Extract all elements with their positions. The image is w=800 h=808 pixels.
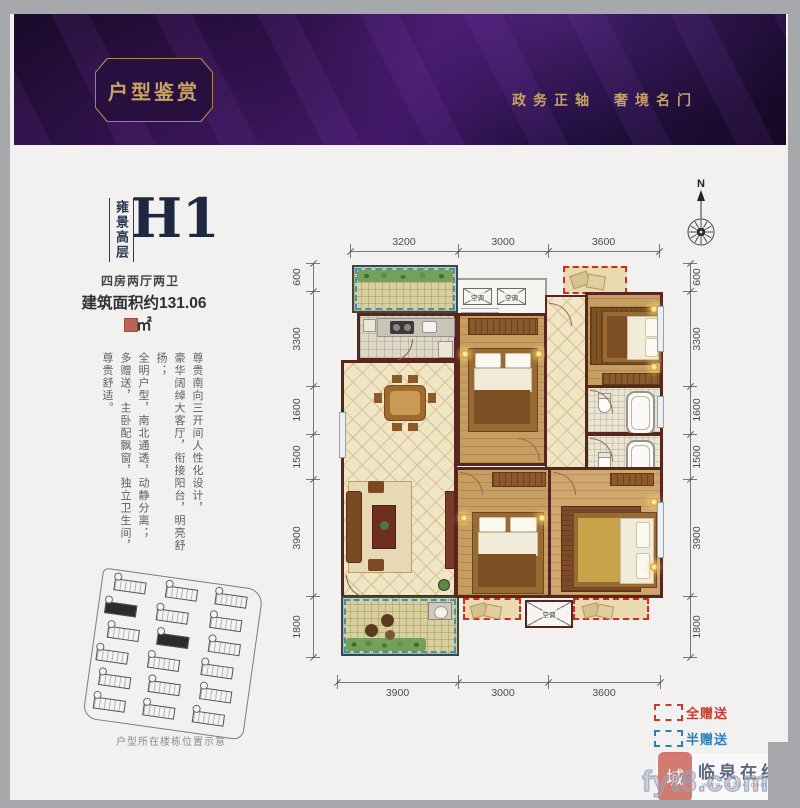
sofa bbox=[346, 491, 362, 563]
description-line: 豪华阔绰大客厅，衔接阳台，明亮舒扬； bbox=[152, 352, 188, 564]
legend-full-gift-label: 全赠送 bbox=[686, 703, 728, 722]
siteplan-building bbox=[156, 608, 189, 624]
dimension-label: 600 bbox=[691, 268, 703, 286]
bay-window-south-gift-1 bbox=[463, 598, 521, 620]
dimension-label: 3000 bbox=[491, 687, 514, 699]
page-title: 户型鉴赏 bbox=[108, 76, 200, 105]
siteplan-building bbox=[147, 680, 180, 696]
dimension-label: 3000 bbox=[491, 236, 514, 248]
bedroom-northeast bbox=[585, 292, 663, 390]
entry-door bbox=[346, 575, 369, 598]
entry-hall bbox=[545, 295, 589, 487]
siteplan-building bbox=[165, 585, 198, 601]
window bbox=[657, 502, 664, 558]
bedroom-north bbox=[457, 313, 547, 466]
siteplan-building bbox=[156, 633, 189, 649]
bathroom-1 bbox=[585, 385, 663, 435]
siteplan-building bbox=[142, 703, 175, 719]
compass: N bbox=[678, 178, 724, 248]
dimension-label: 1500 bbox=[291, 445, 303, 468]
laundry-basin bbox=[428, 602, 452, 620]
banner: 户型鉴赏 政务正轴奢境名门 bbox=[14, 14, 786, 145]
dimension-label: 1600 bbox=[691, 398, 703, 421]
description-line: 多赠送，主卧配飘窗，独立卫生间，尊贵舒适。 bbox=[98, 352, 134, 564]
bedroom-door bbox=[553, 472, 576, 495]
dimension-label: 600 bbox=[291, 268, 303, 286]
unit-code: H1 bbox=[131, 186, 220, 250]
dimension-label: 1500 bbox=[691, 445, 703, 468]
stove bbox=[390, 321, 414, 334]
bed bbox=[573, 512, 657, 588]
frame-right bbox=[788, 0, 800, 808]
siteplan-building bbox=[200, 663, 233, 679]
bay-window-north-gift bbox=[563, 266, 627, 294]
siteplan-building bbox=[192, 710, 225, 726]
siteplan-building bbox=[104, 601, 137, 617]
red-seal-stamp bbox=[124, 318, 138, 332]
master-bedroom bbox=[548, 467, 663, 598]
dimension-label: 3300 bbox=[691, 327, 703, 350]
dimension-label: 3200 bbox=[392, 236, 415, 248]
siteplan-caption: 户型所在楼栋位置示意 bbox=[96, 733, 246, 748]
frame-left bbox=[0, 0, 10, 808]
coffee-table bbox=[372, 505, 396, 549]
siteplan-building bbox=[113, 578, 146, 594]
description-line: 全明户型，南北通透，动静分离； bbox=[134, 352, 152, 564]
siteplan-building bbox=[209, 616, 242, 632]
dimension-label: 1600 bbox=[291, 398, 303, 421]
living-dining-room bbox=[341, 360, 457, 598]
kitchen-door bbox=[390, 339, 413, 362]
fridge bbox=[438, 341, 453, 358]
bed bbox=[468, 348, 538, 432]
dim-line-left bbox=[313, 263, 314, 657]
ac-platform-top-right: 空调 bbox=[497, 288, 526, 305]
slogan-left: 政务正轴 bbox=[512, 93, 596, 109]
ac-platform-bottom: 空调 bbox=[525, 600, 573, 628]
unit-area: 建筑面积约131.06㎡ bbox=[74, 291, 214, 335]
balcony-top bbox=[352, 265, 458, 313]
dimension-label: 1800 bbox=[291, 615, 303, 638]
bedroom-door bbox=[517, 438, 540, 461]
siteplan-building bbox=[214, 592, 247, 608]
legend-full-gift-box bbox=[654, 704, 683, 721]
tv-cabinet bbox=[445, 491, 455, 569]
floor-plan: 空调 空调 bbox=[337, 262, 663, 658]
legend-half-gift-box bbox=[654, 730, 683, 747]
legend-half-gift-label: 半赠送 bbox=[686, 729, 728, 748]
compass-rose-icon bbox=[678, 190, 724, 248]
kitchen-sink bbox=[422, 321, 437, 333]
siteplan-building bbox=[98, 673, 131, 689]
window bbox=[657, 306, 664, 352]
banner-slogan: 政务正轴奢境名门 bbox=[512, 90, 716, 110]
bed bbox=[472, 512, 544, 594]
dining-table bbox=[384, 385, 426, 421]
bathroom-door bbox=[590, 438, 613, 461]
unit-entry-door bbox=[549, 303, 572, 326]
siteplan-building bbox=[208, 640, 241, 656]
dimension-label: 3900 bbox=[291, 526, 303, 549]
title-frame: 户型鉴赏 bbox=[95, 58, 213, 122]
dimension-label: 3600 bbox=[592, 687, 615, 699]
siteplan-building bbox=[147, 656, 180, 672]
unit-layout: 四房两厅两卫 bbox=[90, 272, 190, 289]
dimension-label: 3300 bbox=[291, 327, 303, 350]
bed bbox=[602, 311, 662, 363]
kitchen bbox=[357, 313, 457, 361]
window bbox=[339, 412, 346, 458]
slogan-right: 奢境名门 bbox=[614, 93, 698, 109]
frame-bottom bbox=[0, 800, 800, 808]
bedroom-door bbox=[460, 472, 483, 495]
balcony-plants bbox=[357, 270, 453, 282]
ac-platform-top-left: 空调 bbox=[463, 288, 492, 305]
frame-top bbox=[0, 0, 800, 14]
bedroom-south bbox=[455, 467, 551, 598]
siteplan-building bbox=[199, 687, 232, 703]
balcony-bottom bbox=[341, 596, 459, 656]
bay-window-south-gift-2 bbox=[573, 598, 649, 620]
window bbox=[657, 396, 664, 428]
siteplan-building bbox=[93, 696, 126, 712]
dim-line-bottom bbox=[337, 682, 660, 683]
dimension-label: 3600 bbox=[592, 236, 615, 248]
siteplan bbox=[82, 567, 264, 740]
siteplan-building bbox=[95, 648, 128, 664]
dimension-label: 3900 bbox=[691, 526, 703, 549]
plant-pot bbox=[438, 579, 450, 591]
siteplan-building bbox=[107, 626, 140, 642]
balcony-chairs bbox=[363, 612, 403, 642]
frame-corner-br bbox=[768, 742, 800, 808]
description-line: 尊贵南向三开间人性化设计， bbox=[188, 352, 206, 564]
corridor-hatch bbox=[461, 306, 499, 313]
poster-page: { "header": { "title": "户型鉴赏", "slogan_l… bbox=[0, 0, 800, 808]
compass-north-label: N bbox=[678, 178, 724, 190]
unit-description: 尊贵南向三开间人性化设计，豪华阔绰大客厅，衔接阳台，明亮舒扬；全明户型，南北通透… bbox=[98, 352, 206, 564]
dimension-label: 3900 bbox=[386, 687, 409, 699]
dimension-label: 1800 bbox=[691, 615, 703, 638]
dim-line-top bbox=[350, 251, 659, 252]
